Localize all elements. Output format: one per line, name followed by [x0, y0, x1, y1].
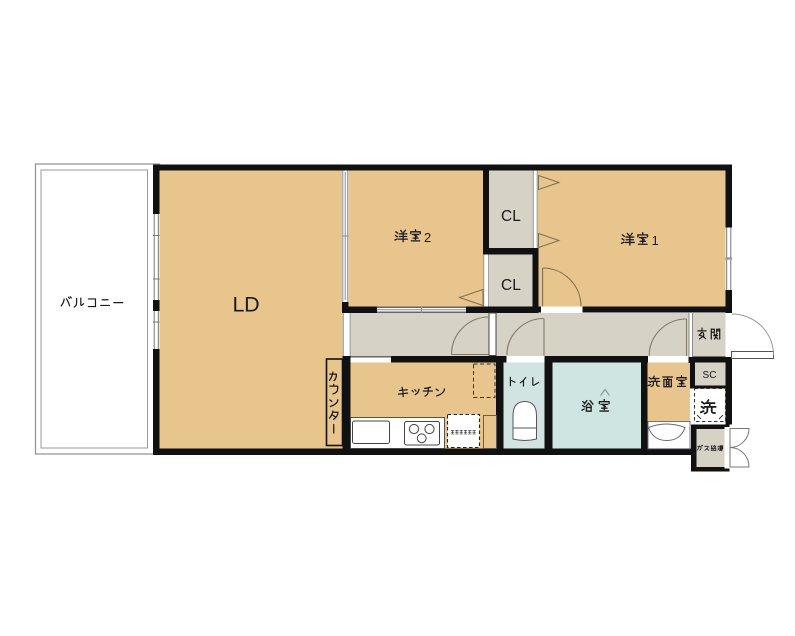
svg-text:CL: CL [501, 277, 521, 294]
svg-text:CL: CL [501, 208, 521, 225]
svg-text:LD: LD [233, 293, 260, 317]
svg-text:SC: SC [703, 370, 717, 381]
svg-text:1: 1 [652, 233, 659, 248]
svg-text:2: 2 [424, 230, 431, 245]
